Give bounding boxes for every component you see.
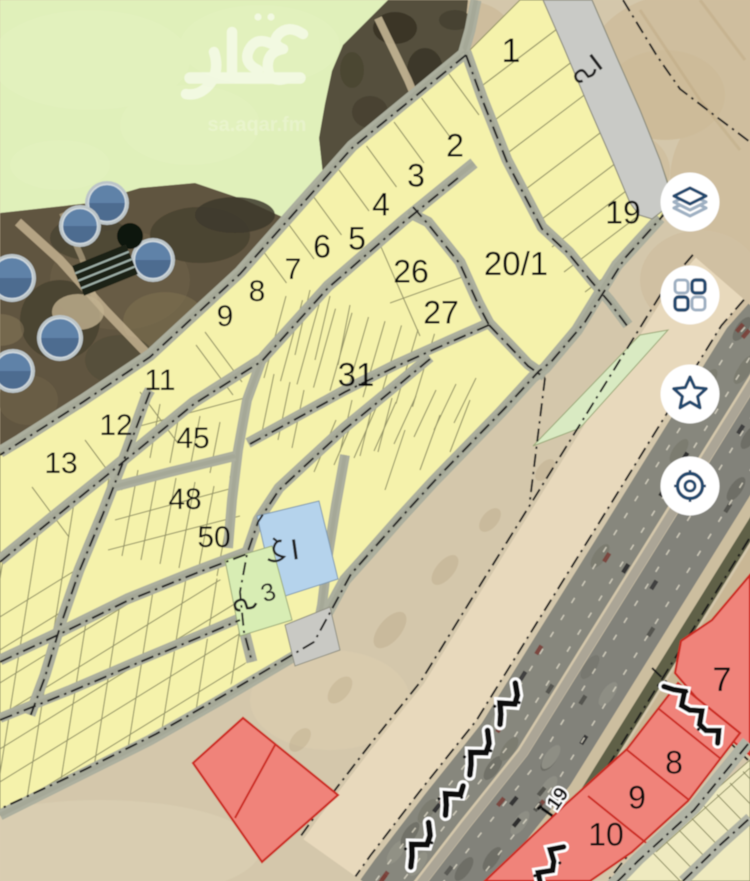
svg-text:13: 13: [44, 447, 77, 480]
svg-text:7: 7: [713, 661, 732, 699]
svg-text:sa.aqar.fm: sa.aqar.fm: [208, 114, 307, 136]
svg-text:3: 3: [407, 158, 425, 194]
svg-text:9: 9: [628, 780, 646, 816]
svg-text:5: 5: [348, 221, 366, 257]
svg-text:11: 11: [144, 364, 175, 397]
svg-text:26: 26: [393, 254, 429, 290]
svg-text:1: 1: [502, 32, 521, 70]
svg-text:10: 10: [588, 817, 624, 853]
svg-text:9: 9: [217, 300, 234, 333]
svg-text:48: 48: [168, 483, 201, 516]
svg-text:8: 8: [249, 275, 266, 308]
svg-text:45: 45: [176, 422, 209, 455]
svg-text:50: 50: [197, 521, 230, 554]
svg-text:31: 31: [338, 356, 375, 393]
svg-text:20/1: 20/1: [484, 245, 548, 282]
svg-text:4: 4: [372, 187, 390, 223]
svg-text:19: 19: [605, 195, 641, 231]
svg-text:12: 12: [99, 409, 132, 442]
svg-text:6: 6: [313, 229, 331, 265]
svg-text:8: 8: [665, 745, 683, 781]
svg-text:2: 2: [446, 128, 464, 164]
svg-text:7: 7: [285, 253, 302, 286]
svg-text:27: 27: [423, 295, 459, 331]
